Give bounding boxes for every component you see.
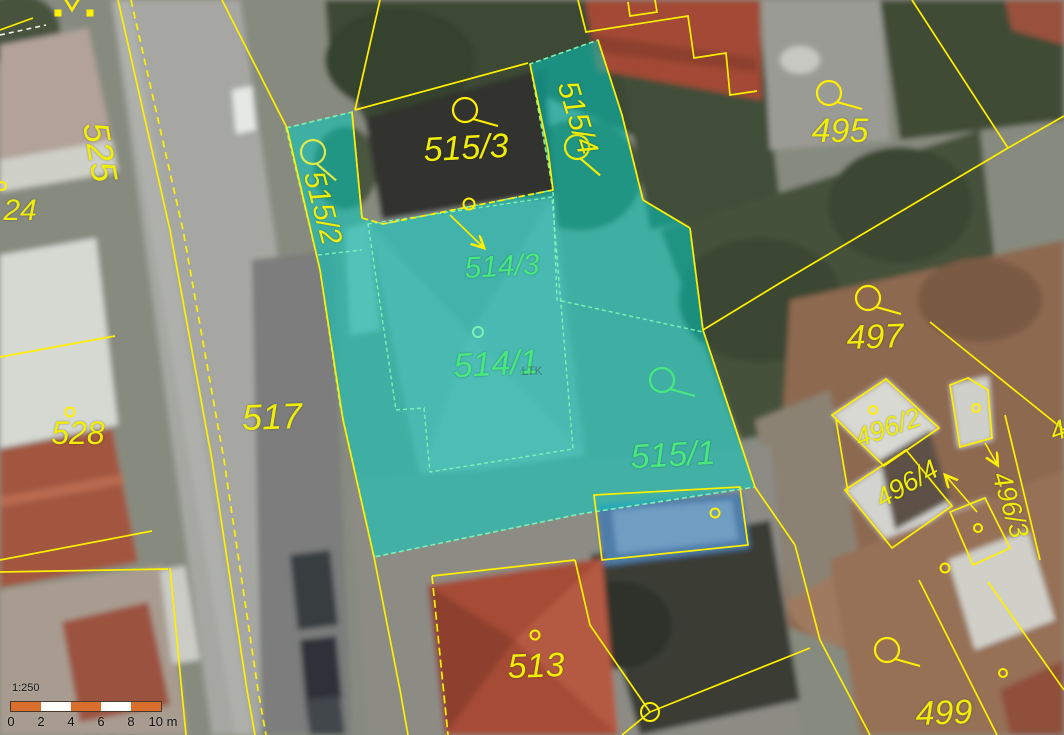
scale-bar-graphic: [10, 701, 162, 712]
scale-bar-segment: [101, 702, 131, 711]
scale-tick: 8: [127, 714, 134, 729]
parcel-label-24[interactable]: 24: [3, 196, 36, 226]
survey-square-icon: [87, 10, 94, 17]
parcel-label-515-3[interactable]: 515/3: [423, 129, 510, 167]
scale-tick: 6: [97, 714, 104, 729]
parcel-label-497[interactable]: 497: [846, 319, 904, 355]
parcel-label-495[interactable]: 495: [812, 114, 869, 148]
scale-bar-segment: [41, 702, 71, 711]
parcel-label-517[interactable]: 517: [241, 398, 302, 436]
scale-bar-segment: [11, 702, 41, 711]
scale-bar-segment: [71, 702, 101, 711]
parcel-label-528[interactable]: 528: [51, 417, 104, 449]
parcel-label-525[interactable]: 525: [77, 119, 123, 184]
survey-square-icon: [55, 10, 62, 17]
parcel-label-ltk: LTK: [521, 365, 542, 377]
scale-bar-segment: [131, 702, 161, 711]
parcel-label-513[interactable]: 513: [507, 648, 565, 684]
scale-tick: 10 m: [149, 714, 178, 729]
scale-ratio: 1:250: [12, 682, 40, 694]
parcel-label-514-3[interactable]: 514/3: [464, 250, 541, 284]
scale-tick: 4: [67, 714, 74, 729]
scale-tick: 2: [37, 714, 44, 729]
scale-bar: 1:250 0246810 m: [0, 680, 230, 735]
scale-tick: 0: [7, 714, 14, 729]
parcel-label-499[interactable]: 499: [915, 695, 973, 731]
map-viewport[interactable]: 24525515/3515/2515/451752851349549749949…: [0, 0, 1064, 735]
parcel-label-515-1[interactable]: 515/1: [630, 436, 717, 474]
